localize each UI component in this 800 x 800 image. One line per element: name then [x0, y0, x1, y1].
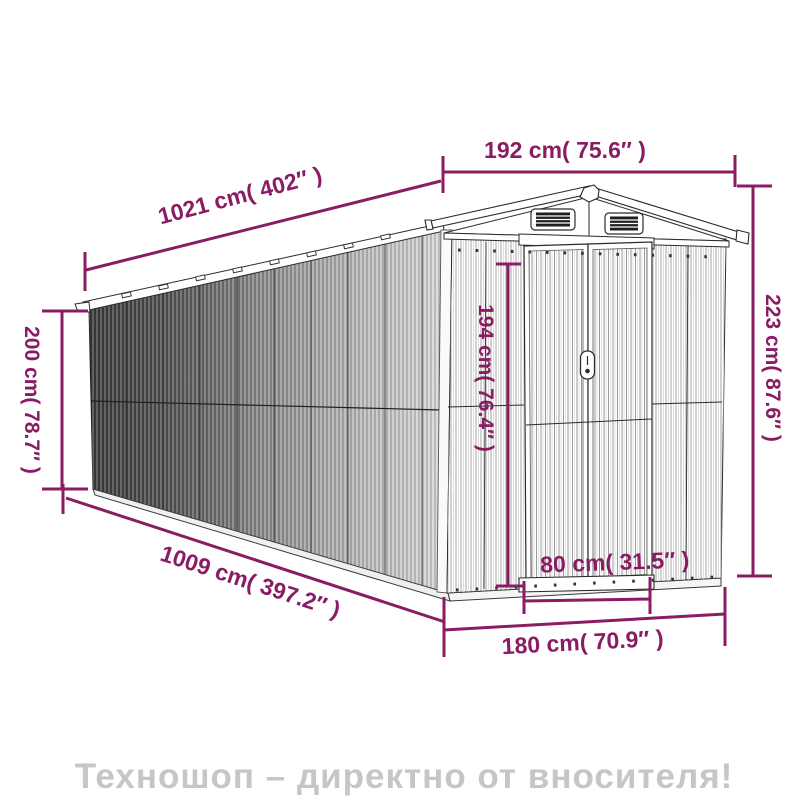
dimension-door-width-label: 80 cm( 31.5″ ) [540, 546, 690, 577]
side-wall [89, 230, 444, 592]
dimension-front-width: 192 cm( 75.6″ ) [443, 137, 735, 193]
double-doors [524, 242, 652, 585]
roof-end-cap-right [736, 230, 749, 244]
roof-end-cap-left [425, 220, 433, 230]
dimension-wall-height-label: 200 cm( 78.7″ ) [20, 326, 43, 474]
door-sill [519, 575, 654, 592]
dimension-ridge-height-label: 223 cm( 87.6″ ) [761, 294, 784, 442]
dimension-wall-height: 200 cm( 78.7″ ) [20, 311, 88, 489]
gable-vent-right-icon [605, 213, 643, 234]
door-panel-left [529, 250, 583, 580]
gable-vent-left-icon [531, 209, 575, 230]
shed-diagram: 192 cm( 75.6″ ) 1021 cm( 402″ ) 200 cm( … [0, 0, 800, 800]
dimension-door-height-label: 194 cm( 76.4″ ) [474, 304, 497, 452]
dimension-front-base-width-label: 180 cm( 70.9″ ) [501, 625, 664, 659]
dimension-front-width-label: 192 cm( 75.6″ ) [484, 137, 646, 163]
door-panel-right [593, 248, 647, 577]
dimension-length-top-label: 1021 cm( 402″ ) [155, 161, 324, 229]
dimension-ridge-height: 223 cm( 87.6″ ) [737, 186, 784, 576]
product-dimension-image: 192 cm( 75.6″ ) 1021 cm( 402″ ) 200 cm( … [0, 0, 800, 800]
door-handle-icon [581, 351, 595, 379]
watermark-text: Техношоп – директно от вносителя! [75, 757, 734, 796]
